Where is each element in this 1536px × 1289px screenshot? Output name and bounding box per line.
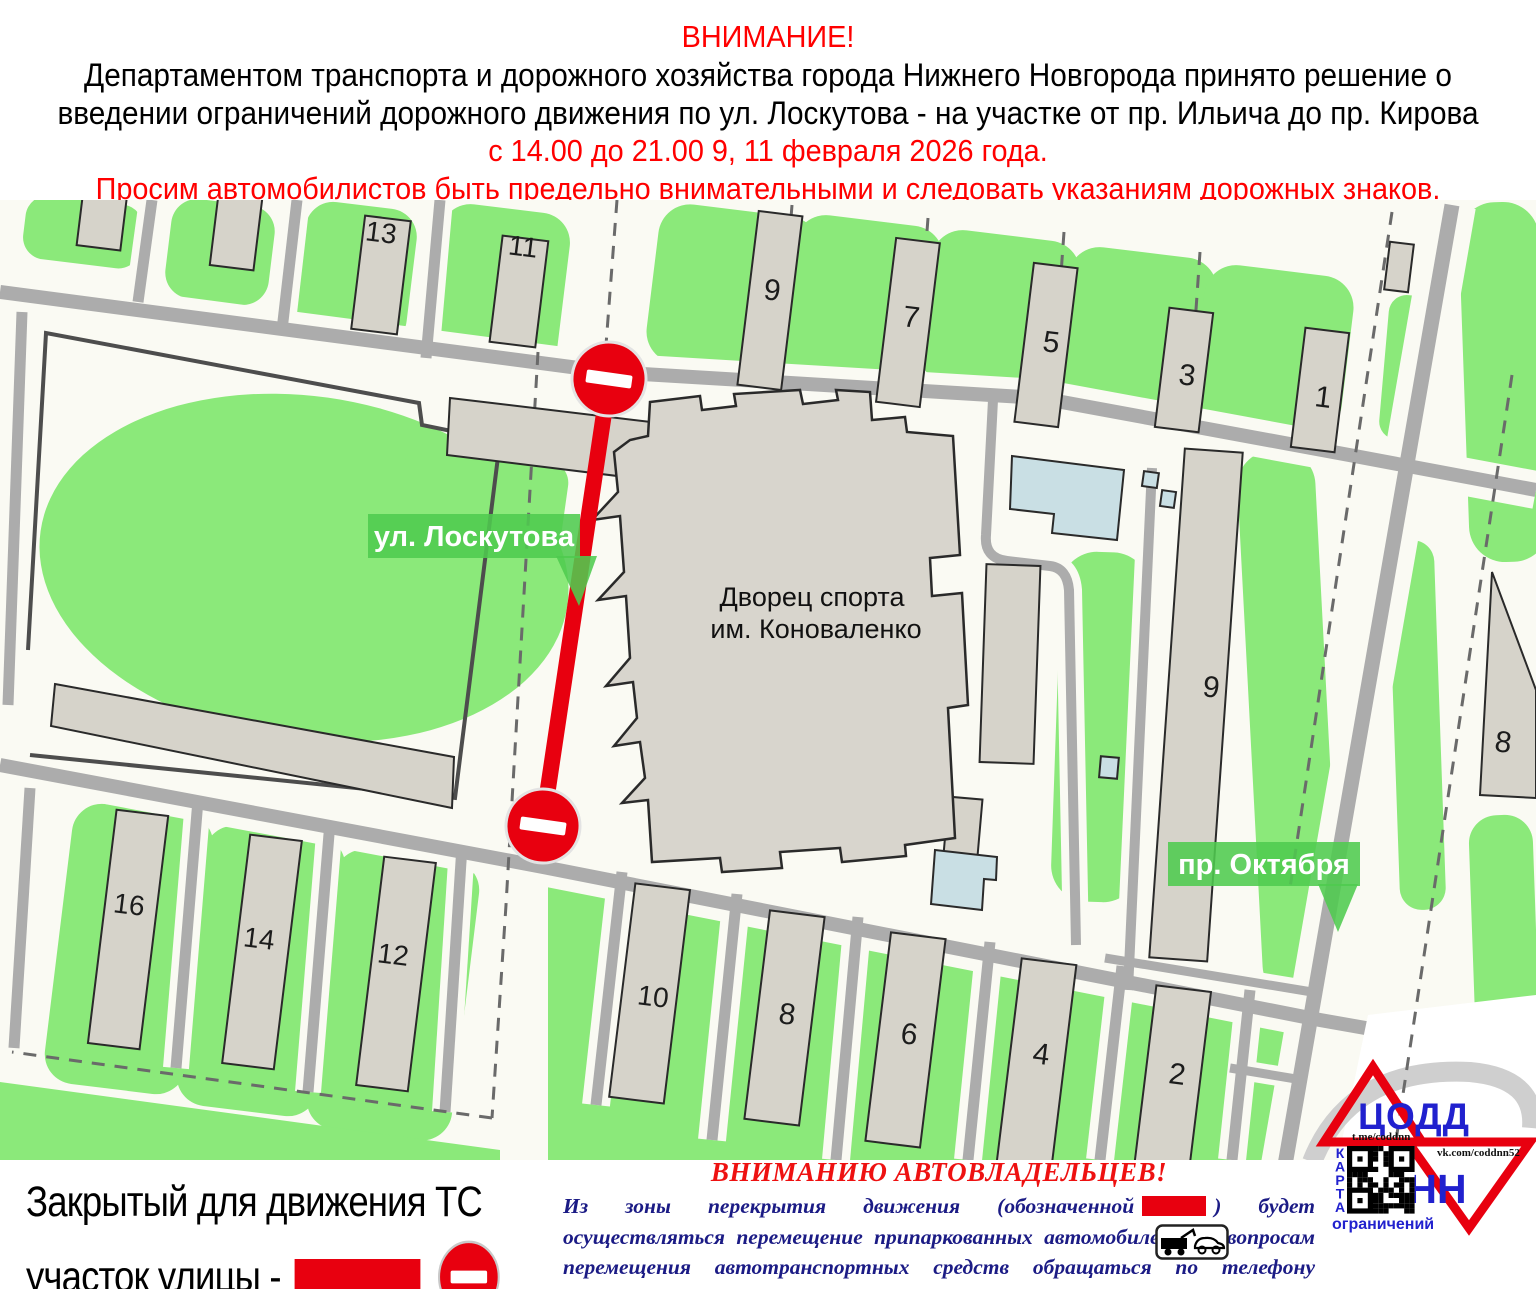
closed-segment-swatch: [294, 1259, 420, 1289]
logo-vk-link: vk.com/coddnn52: [1437, 1147, 1520, 1159]
qr-caption-bottom: ограничений: [1332, 1216, 1434, 1233]
qr-caption-vertical: КАРТА: [1335, 1145, 1345, 1215]
logo-telegram-link: t.me/coddnn: [1352, 1131, 1410, 1143]
closure-zone-swatch: [1142, 1196, 1206, 1216]
announcement-header: ВНИМАНИЕ! Департаментом транспорта и дор…: [0, 18, 1536, 208]
svg-text:А: А: [1335, 1199, 1345, 1215]
qr-code: [1347, 1146, 1415, 1214]
header-text-line1: Департаментом транспорта и дорожного хоз…: [54, 56, 1482, 94]
building-number: 12: [376, 937, 411, 972]
legend: Закрытый для движения ТС участок улицы -: [26, 1178, 586, 1289]
legend-text-line2: участок улицы -: [26, 1253, 281, 1289]
codd-logo: ЦОДД НН t.me/coddnn vk.com/coddnn52 КАРТ…: [1280, 1035, 1536, 1289]
owners-notice: ВНИМАНИЮ АВТОВЛАДЕЛЬЦЕВ! Из зоны перекры…: [563, 1157, 1315, 1289]
svg-text:им. Коноваленко: им. Коноваленко: [710, 614, 921, 644]
logo-city: НН: [1407, 1166, 1466, 1212]
header-attention: ВНИМАНИЕ!: [54, 18, 1482, 56]
phone-number: 417-17-07: [563, 1286, 653, 1289]
building-number: 10: [636, 979, 671, 1014]
building-number: 13: [364, 215, 399, 250]
svg-text:ул. Лоскутова: ул. Лоскутова: [374, 521, 575, 553]
legend-text-line1: Закрытый для движения ТС: [26, 1178, 502, 1227]
page: ВНИМАНИЕ! Департаментом транспорта и дор…: [0, 0, 1536, 1289]
notice-body-before: Из зоны перекрытия движения (обозначенно…: [563, 1194, 1134, 1218]
building-number: 16: [112, 887, 147, 922]
tow-truck-icon: [1155, 1224, 1229, 1260]
no-entry-sign-icon: [436, 1237, 502, 1289]
city-map: ул. Лоскутова пр. Октября Дворец спорта …: [0, 200, 1536, 1160]
notice-title: ВНИМАНИЮ АВТОВЛАДЕЛЬЦЕВ!: [563, 1157, 1315, 1188]
building-number: 11: [507, 229, 540, 263]
svg-text:пр. Октября: пр. Октября: [1178, 849, 1350, 881]
svg-text:Дворец спорта: Дворец спорта: [720, 582, 906, 612]
header-dates: с 14.00 до 21.00 9, 11 февраля 2026 года…: [54, 132, 1482, 170]
header-text-line2: введении ограничений дорожного движения …: [54, 94, 1482, 132]
building-number: 14: [242, 921, 277, 956]
